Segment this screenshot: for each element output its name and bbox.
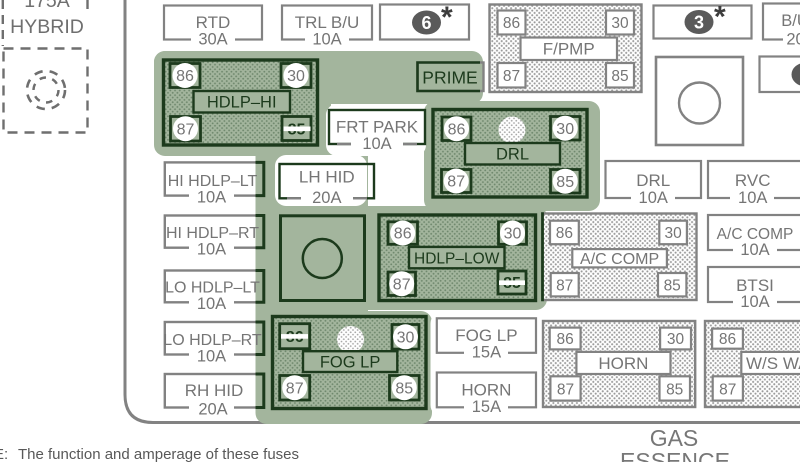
svg-text:LO HDLP–RT: LO HDLP–RT [163, 332, 262, 349]
svg-text:85: 85 [664, 278, 681, 295]
svg-text:PRIME: PRIME [422, 68, 477, 88]
svg-text:30: 30 [397, 330, 415, 347]
svg-text:20A: 20A [312, 189, 341, 207]
svg-text:DRL: DRL [496, 146, 529, 164]
svg-text:10A: 10A [312, 30, 341, 48]
svg-text:10A: 10A [362, 135, 391, 153]
svg-text:HI HDLP–LT: HI HDLP–LT [168, 173, 258, 190]
svg-text:HDLP–HI: HDLP–HI [207, 94, 277, 112]
svg-text:87: 87 [447, 174, 465, 191]
svg-text:86: 86 [176, 68, 194, 85]
svg-text:85: 85 [556, 174, 574, 191]
svg-text:HORN: HORN [598, 354, 648, 373]
svg-text:10A: 10A [197, 347, 226, 365]
svg-text:15A: 15A [472, 398, 501, 416]
svg-text:10A: 10A [738, 189, 767, 207]
svg-text:30: 30 [667, 331, 685, 348]
svg-text:6: 6 [421, 13, 431, 33]
svg-text:RVC: RVC [735, 171, 771, 190]
svg-text:87: 87 [177, 122, 195, 139]
svg-text:10A: 10A [197, 295, 226, 313]
svg-text:DRL: DRL [636, 171, 670, 190]
svg-text:85: 85 [395, 380, 413, 397]
svg-text:87: 87 [557, 381, 574, 398]
svg-text:86: 86 [503, 15, 520, 32]
svg-text:85: 85 [611, 68, 628, 85]
svg-text:W/S WA: W/S WA [746, 354, 800, 373]
svg-text:175A: 175A [24, 0, 70, 12]
svg-text:*: * [714, 1, 726, 34]
svg-text:87: 87 [286, 380, 304, 397]
svg-text:85: 85 [666, 381, 683, 398]
svg-text:30: 30 [556, 121, 574, 138]
svg-text:E:: E: [0, 446, 8, 462]
svg-text:RH HID: RH HID [185, 381, 244, 400]
svg-text:86: 86 [556, 225, 573, 242]
svg-text:HORN: HORN [461, 381, 511, 400]
svg-text:87: 87 [556, 278, 573, 295]
svg-text:30: 30 [664, 225, 682, 242]
svg-text:A/C COMP: A/C COMP [580, 251, 659, 268]
svg-text:86: 86 [719, 331, 736, 348]
svg-text:B/U: B/U [781, 12, 800, 30]
svg-text:86: 86 [394, 226, 412, 243]
svg-text:The function and amperage of t: The function and amperage of these fuses [18, 446, 299, 462]
svg-text:ESSENCE: ESSENCE [620, 448, 730, 462]
svg-text:30A: 30A [198, 30, 227, 48]
svg-text:LO HDLP–LT: LO HDLP–LT [165, 279, 260, 296]
svg-text:20A: 20A [198, 400, 227, 418]
svg-text:86: 86 [556, 331, 573, 348]
svg-text:10A: 10A [197, 189, 226, 207]
svg-text:10A: 10A [639, 189, 668, 207]
svg-text:87: 87 [719, 381, 736, 398]
svg-text:20A: 20A [786, 30, 800, 48]
svg-text:HYBRID: HYBRID [10, 16, 84, 38]
svg-text:30: 30 [611, 15, 629, 32]
svg-text:30: 30 [287, 68, 305, 85]
svg-text:3: 3 [694, 13, 704, 33]
svg-text:LH HID: LH HID [299, 168, 355, 187]
svg-text:10A: 10A [197, 241, 226, 259]
svg-text:F/PMP: F/PMP [543, 40, 595, 59]
svg-text:RTD: RTD [196, 13, 231, 32]
svg-text:87: 87 [393, 276, 411, 293]
svg-text:FRT PARK: FRT PARK [336, 118, 419, 137]
svg-text:87: 87 [503, 68, 520, 85]
svg-text:10A: 10A [740, 293, 769, 311]
svg-text:10A: 10A [740, 241, 769, 259]
svg-text:30: 30 [504, 226, 522, 243]
svg-text:TRL B/U: TRL B/U [295, 13, 360, 32]
svg-text:15A: 15A [472, 344, 501, 362]
svg-text:86: 86 [448, 121, 466, 138]
svg-text:HDLP–LOW: HDLP–LOW [414, 250, 500, 267]
svg-text:FOG LP: FOG LP [320, 353, 381, 371]
svg-text:*: * [441, 1, 453, 34]
svg-text:FOG LP: FOG LP [455, 326, 517, 345]
